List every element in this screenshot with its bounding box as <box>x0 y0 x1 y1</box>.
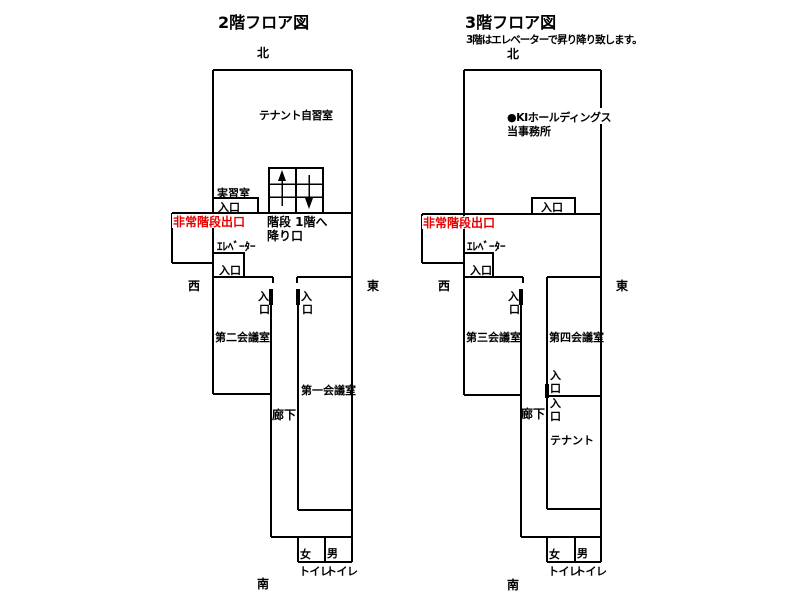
floor3-tenant-entrance-char1: 入 <box>550 397 561 410</box>
floor3-corridor-label: 廊下 <box>521 406 545 421</box>
floor3-toilet-women-label: 女 <box>549 547 560 561</box>
floor3-plan: 3階フロア図 3階はエレベーターで昇り降り致します。 北 ●KIホールディングス… <box>422 13 642 592</box>
floor2-plan: 2階フロア図 北 テナント自習室 実習室 入口 非常階段出口 階段 1階へ 降り… <box>172 13 379 591</box>
floor3-office-line1: ●KIホールディングス <box>507 110 611 124</box>
floor2-elevator-entrance-label: 入口 <box>219 264 241 277</box>
floor3-south-label: 南 <box>507 577 519 592</box>
floor2-meeting2-entrance-char1: 入 <box>258 290 269 303</box>
floor3-walls <box>422 70 601 562</box>
floor2-meeting-room1-label: 第一会議室 <box>301 383 356 397</box>
floor3-emergency-exit-label: 非常階段出口 <box>423 215 495 230</box>
floor2-meeting-room2-label: 第二会議室 <box>215 330 270 344</box>
stairs-down-arrow-icon <box>305 175 313 209</box>
floor3-meeting-room4-label: 第四会議室 <box>549 330 604 344</box>
floor2-toilet-men-label: 男 <box>327 547 338 560</box>
floor3-north-label: 北 <box>507 46 519 61</box>
floor3-meeting4-entrance-char2: 口 <box>550 382 561 395</box>
floor2-labels: 2階フロア図 北 テナント自習室 実習室 入口 非常階段出口 階段 1階へ 降り… <box>173 13 379 591</box>
floor3-meeting3-entrance-char1: 入 <box>508 290 519 303</box>
floor2-west-label: 西 <box>188 279 200 293</box>
floor2-toilet-women-label: 女 <box>300 547 311 561</box>
floor3-note: 3階はエレベーターで昇り降り致します。 <box>466 33 642 46</box>
floor2-training-room-entrance-label: 入口 <box>218 201 240 214</box>
floor3-tenant-entrance-char2: 口 <box>550 410 561 423</box>
floor3-elevator-label: ｴﾚﾍﾞｰﾀｰ <box>467 239 506 253</box>
floor2-training-room-label: 実習室 <box>217 186 250 200</box>
floor3-toilet-men-label: 男 <box>577 547 588 560</box>
stairs-up-arrow-icon <box>278 170 286 206</box>
floor3-title: 3階フロア図 <box>465 13 556 32</box>
floor2-title: 2階フロア図 <box>218 13 309 32</box>
floor2-stairs-label-line2: 降り口 <box>267 228 303 243</box>
floor2-tenant-study-room-label: テナント自習室 <box>259 108 333 122</box>
floor2-stairs-label-line1: 階段 1階へ <box>267 214 328 229</box>
floor2-meeting2-entrance-char2: 口 <box>259 303 270 316</box>
floor3-toilet-label-right: トイレ <box>575 565 607 578</box>
floor3-meeting-room3-label: 第三会議室 <box>466 330 521 344</box>
staircase <box>269 168 323 213</box>
floor3-office-entrance-label: 入口 <box>541 201 563 214</box>
floor3-east-label: 東 <box>616 278 628 293</box>
floor-plan-page: 2階フロア図 北 テナント自習室 実習室 入口 非常階段出口 階段 1階へ 降り… <box>0 0 800 600</box>
floor-plan-canvas: 2階フロア図 北 テナント自習室 実習室 入口 非常階段出口 階段 1階へ 降り… <box>0 0 800 600</box>
door-jamb-meeting1 <box>296 289 300 305</box>
door-jamb-meeting4-tenant <box>545 384 549 398</box>
floor3-west-label: 西 <box>438 279 450 293</box>
floor2-walls <box>172 70 352 562</box>
floor3-elevator-entrance-label: 入口 <box>470 264 492 277</box>
floor2-meeting1-entrance-char2: 口 <box>302 303 313 316</box>
floor2-toilet-label-right: トイレ <box>326 565 358 578</box>
floor2-elevator-label: ｴﾚﾍﾞｰﾀｰ <box>217 239 256 253</box>
floor2-east-label: 東 <box>367 278 379 293</box>
floor3-meeting3-entrance-char2: 口 <box>509 303 520 316</box>
floor2-south-label: 南 <box>257 576 269 591</box>
floor2-meeting1-entrance-char1: 入 <box>301 290 312 303</box>
floor2-north-label: 北 <box>257 45 269 60</box>
floor2-corridor-label: 廊下 <box>272 407 296 422</box>
floor3-labels: 3階フロア図 3階はエレベーターで昇り降り致します。 北 ●KIホールディングス… <box>423 13 642 592</box>
floor3-tenant-room-label: テナント <box>550 434 594 447</box>
floor2-emergency-exit-label: 非常階段出口 <box>173 214 245 229</box>
floor3-office-line2: 当事務所 <box>507 124 551 138</box>
floor3-meeting4-entrance-char1: 入 <box>550 369 561 382</box>
